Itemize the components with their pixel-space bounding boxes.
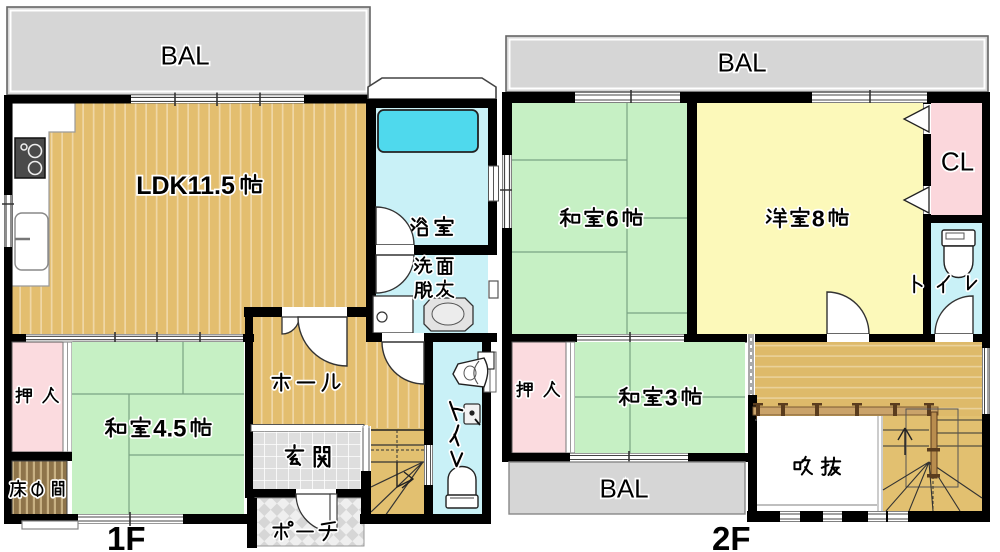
svg-text:BAL: BAL [718,47,767,77]
svg-text:CL: CL [941,146,974,176]
svg-text:6: 6 [606,205,619,231]
svg-text:4.5: 4.5 [153,416,186,443]
svg-text:8: 8 [812,205,825,231]
svg-text:LDK11.5: LDK11.5 [136,172,235,200]
svg-text:BAL: BAL [600,473,649,503]
svg-text:1F: 1F [107,520,146,552]
svg-text:2F: 2F [712,520,751,552]
svg-text:BAL: BAL [161,40,210,70]
svg-text:3: 3 [665,384,678,410]
